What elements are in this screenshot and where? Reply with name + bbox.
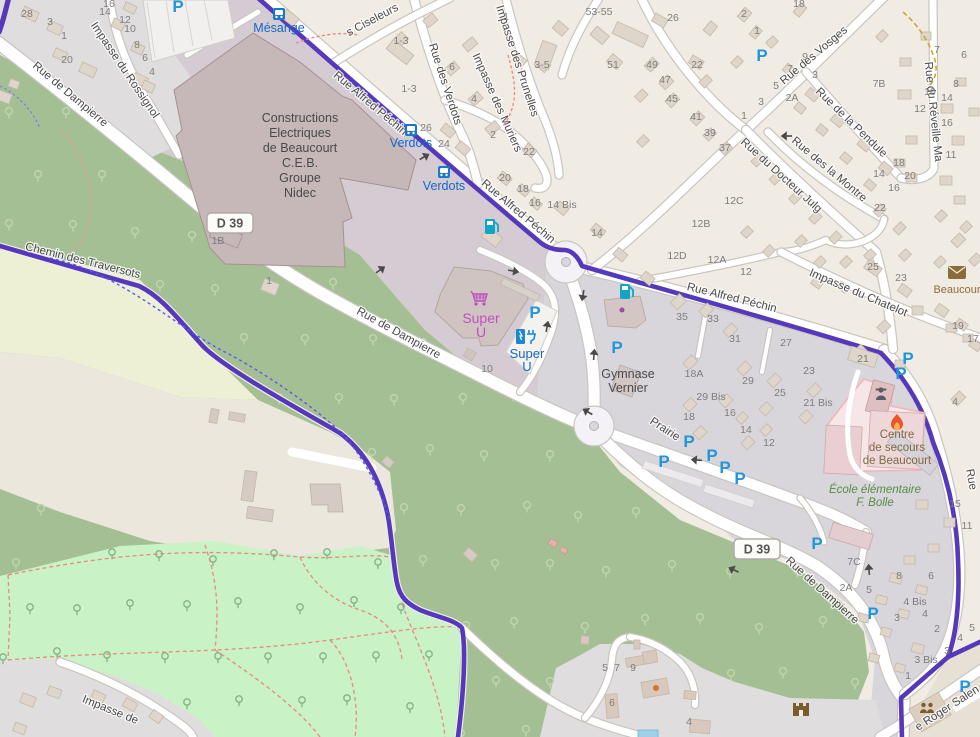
svg-text:1: 1 <box>266 275 272 287</box>
svg-text:P: P <box>756 46 767 65</box>
svg-text:14: 14 <box>873 168 885 180</box>
svg-text:20: 20 <box>904 170 916 182</box>
svg-text:16: 16 <box>529 197 541 209</box>
svg-text:P: P <box>658 452 669 471</box>
svg-text:8: 8 <box>953 78 959 90</box>
svg-text:53-55: 53-55 <box>586 6 613 18</box>
svg-text:7: 7 <box>614 662 620 674</box>
svg-text:8: 8 <box>134 39 140 51</box>
svg-text:9: 9 <box>630 662 636 674</box>
svg-text:7: 7 <box>787 63 793 75</box>
svg-text:5: 5 <box>602 662 608 674</box>
svg-text:49: 49 <box>646 59 658 71</box>
svg-text:Mésange: Mésange <box>253 21 304 35</box>
svg-text:6: 6 <box>142 52 148 64</box>
svg-text:23: 23 <box>803 365 815 377</box>
svg-text:4: 4 <box>952 396 958 408</box>
svg-text:4: 4 <box>471 93 477 105</box>
svg-text:6: 6 <box>609 697 615 709</box>
svg-text:1B: 1B <box>212 235 225 247</box>
svg-text:39: 39 <box>704 127 716 139</box>
svg-text:D 39: D 39 <box>217 217 243 231</box>
svg-text:P: P <box>611 338 622 357</box>
svg-text:11: 11 <box>946 149 957 161</box>
svg-text:7C: 7C <box>847 556 861 568</box>
svg-text:12C: 12C <box>724 195 744 207</box>
svg-text:16: 16 <box>888 182 900 194</box>
svg-text:1: 1 <box>741 110 747 122</box>
svg-text:22: 22 <box>523 146 535 158</box>
svg-text:23: 23 <box>895 272 907 284</box>
svg-text:3: 3 <box>758 96 764 108</box>
svg-text:9: 9 <box>802 51 808 63</box>
svg-text:6: 6 <box>449 61 455 73</box>
svg-text:41: 41 <box>690 111 702 123</box>
svg-text:31: 31 <box>729 333 741 345</box>
svg-text:12A: 12A <box>708 254 727 266</box>
svg-text:6: 6 <box>928 570 934 582</box>
svg-text:12: 12 <box>740 266 752 278</box>
svg-text:22: 22 <box>691 59 703 71</box>
svg-text:37: 37 <box>719 142 731 154</box>
svg-text:2A: 2A <box>786 92 799 104</box>
svg-text:3: 3 <box>944 645 950 657</box>
svg-text:14: 14 <box>591 227 603 239</box>
svg-text:2: 2 <box>934 623 940 635</box>
svg-text:16: 16 <box>724 407 736 419</box>
svg-text:18: 18 <box>517 183 529 195</box>
svg-text:7: 7 <box>934 44 940 56</box>
svg-text:25: 25 <box>774 387 786 399</box>
svg-text:4: 4 <box>957 632 963 644</box>
svg-text:3 Bis: 3 Bis <box>914 654 937 666</box>
svg-text:8: 8 <box>896 570 902 582</box>
svg-text:35: 35 <box>676 311 688 323</box>
svg-text:4 Bis: 4 Bis <box>903 596 926 608</box>
svg-text:U: U <box>476 324 486 340</box>
svg-text:P: P <box>683 432 694 451</box>
svg-text:12B: 12B <box>692 218 711 230</box>
svg-text:GymnaseVernier: GymnaseVernier <box>601 367 655 395</box>
svg-text:P: P <box>895 364 906 383</box>
svg-text:14: 14 <box>740 424 752 436</box>
svg-text:24: 24 <box>438 138 450 150</box>
svg-text:P: P <box>959 677 970 696</box>
svg-text:1-3: 1-3 <box>401 83 416 95</box>
svg-text:2: 2 <box>741 8 747 20</box>
svg-text:29 Bis: 29 Bis <box>696 391 725 403</box>
svg-text:12: 12 <box>763 437 775 449</box>
svg-text:2A: 2A <box>840 582 853 594</box>
svg-text:14: 14 <box>99 6 111 18</box>
svg-text:21: 21 <box>857 353 869 365</box>
svg-text:4: 4 <box>686 716 692 728</box>
svg-text:P: P <box>867 604 878 623</box>
svg-text:2: 2 <box>490 129 496 141</box>
svg-text:20: 20 <box>61 54 73 66</box>
svg-text:Beaucour: Beaucour <box>933 284 980 296</box>
svg-text:P: P <box>734 469 745 488</box>
svg-text:20: 20 <box>499 172 511 184</box>
svg-text:5: 5 <box>773 80 779 92</box>
svg-text:10: 10 <box>481 363 493 375</box>
svg-text:Verdots: Verdots <box>390 136 432 150</box>
svg-text:15: 15 <box>949 498 961 510</box>
svg-text:U: U <box>522 359 531 374</box>
svg-text:14 Bis: 14 Bis <box>547 199 576 211</box>
svg-text:26: 26 <box>667 12 679 24</box>
svg-text:12: 12 <box>914 103 926 115</box>
svg-text:29: 29 <box>742 375 754 387</box>
svg-text:10: 10 <box>124 23 136 35</box>
svg-text:3: 3 <box>812 69 818 81</box>
svg-text:3: 3 <box>894 612 900 624</box>
svg-text:1-3: 1-3 <box>393 35 408 47</box>
svg-text:1: 1 <box>905 670 911 682</box>
svg-text:Verdots: Verdots <box>423 179 465 193</box>
svg-text:33: 33 <box>707 313 719 325</box>
svg-text:25: 25 <box>867 261 879 273</box>
svg-text:7B: 7B <box>873 78 886 90</box>
svg-text:45: 45 <box>666 93 678 105</box>
svg-text:22: 22 <box>874 202 886 214</box>
svg-text:27: 27 <box>780 337 792 349</box>
svg-text:P: P <box>719 458 730 477</box>
svg-text:1: 1 <box>61 30 67 42</box>
svg-text:5: 5 <box>969 622 975 634</box>
svg-text:P: P <box>706 446 717 465</box>
svg-text:10: 10 <box>924 86 936 98</box>
svg-text:28: 28 <box>21 8 33 20</box>
svg-text:16: 16 <box>941 117 953 129</box>
svg-text:51: 51 <box>607 59 619 71</box>
svg-text:14: 14 <box>941 92 953 104</box>
svg-text:P: P <box>811 534 822 553</box>
svg-text:11: 11 <box>962 520 973 532</box>
svg-text:5: 5 <box>866 584 872 596</box>
svg-text:1: 1 <box>503 11 509 23</box>
svg-text:18A: 18A <box>685 368 704 380</box>
svg-text:21 Bis: 21 Bis <box>803 397 832 409</box>
svg-text:18: 18 <box>683 411 695 423</box>
svg-text:47: 47 <box>659 74 671 86</box>
svg-text:3: 3 <box>47 16 53 28</box>
svg-text:18: 18 <box>893 157 905 169</box>
svg-text:P: P <box>529 303 540 322</box>
svg-text:6: 6 <box>961 49 967 61</box>
svg-text:3-5: 3-5 <box>534 59 549 71</box>
svg-text:P: P <box>172 0 183 16</box>
svg-text:19: 19 <box>952 320 964 332</box>
svg-text:1: 1 <box>754 25 760 37</box>
svg-text:26: 26 <box>420 122 432 134</box>
svg-text:D 39: D 39 <box>744 543 770 557</box>
svg-text:17: 17 <box>967 333 979 345</box>
svg-text:4: 4 <box>922 608 928 620</box>
svg-text:18: 18 <box>793 0 805 10</box>
svg-text:4: 4 <box>149 66 155 78</box>
svg-text:12D: 12D <box>667 250 687 262</box>
